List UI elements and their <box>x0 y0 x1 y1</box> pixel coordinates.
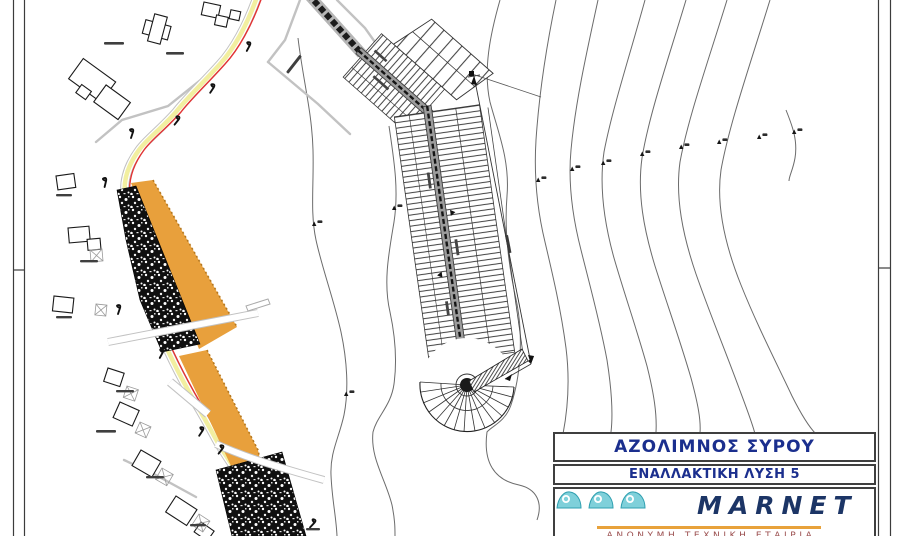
title-block-project-row: ΑΖΟΛΙΜΝΟΣ ΣΥΡΟΥ <box>553 432 876 462</box>
company-name: MARNET <box>697 491 858 520</box>
title-block: ΑΖΟΛΙΜΝΟΣ ΣΥΡΟΥ ΕΝΑΛΛΑΚΤΙΚΗ ΛΥΣΗ 5 MARNE… <box>553 432 876 536</box>
title-block-logo-row: MARNET ΑΝΩΝΥΜΗ ΤΕΧΝΙΚΗ ΕΤΑΙΡΙΑ <box>553 487 876 536</box>
building-footprint <box>141 12 173 46</box>
title-block-solution-row: ΕΝΑΛΛΑΚΤΙΚΗ ΛΥΣΗ 5 <box>553 464 876 485</box>
pier-roundhead <box>420 338 534 432</box>
building-footprint <box>68 225 101 252</box>
contour-depth-ticks <box>312 128 802 396</box>
solution-label: ΕΝΑΛΛΑΚΤΙΚΗ ΛΥΣΗ 5 <box>629 467 800 482</box>
shore-ramp <box>246 299 270 311</box>
project-title: ΑΖΟΛΙΜΝΟΣ ΣΥΡΟΥ <box>614 437 815 457</box>
drawing-sheet: ΑΖΟΛΙΜΝΟΣ ΣΥΡΟΥ ΕΝΑΛΛΑΚΤΙΚΗ ΛΥΣΗ 5 MARNE… <box>0 0 907 536</box>
building-footprint <box>52 296 73 313</box>
marnet-waves-icon <box>555 489 649 513</box>
building-footprint <box>113 402 139 426</box>
building-footprint <box>132 450 161 477</box>
building-footprint <box>200 2 241 29</box>
access-causeway <box>308 0 362 54</box>
building-footprint <box>64 58 135 122</box>
building-footprint <box>56 173 76 189</box>
company-subtitle: ΑΝΩΝΥΜΗ ΤΕΧΝΙΚΗ ΕΤΑΙΡΙΑ <box>597 531 825 536</box>
building-footprint <box>166 496 197 526</box>
logo-underline <box>597 526 821 529</box>
building-footprint <box>104 368 124 387</box>
